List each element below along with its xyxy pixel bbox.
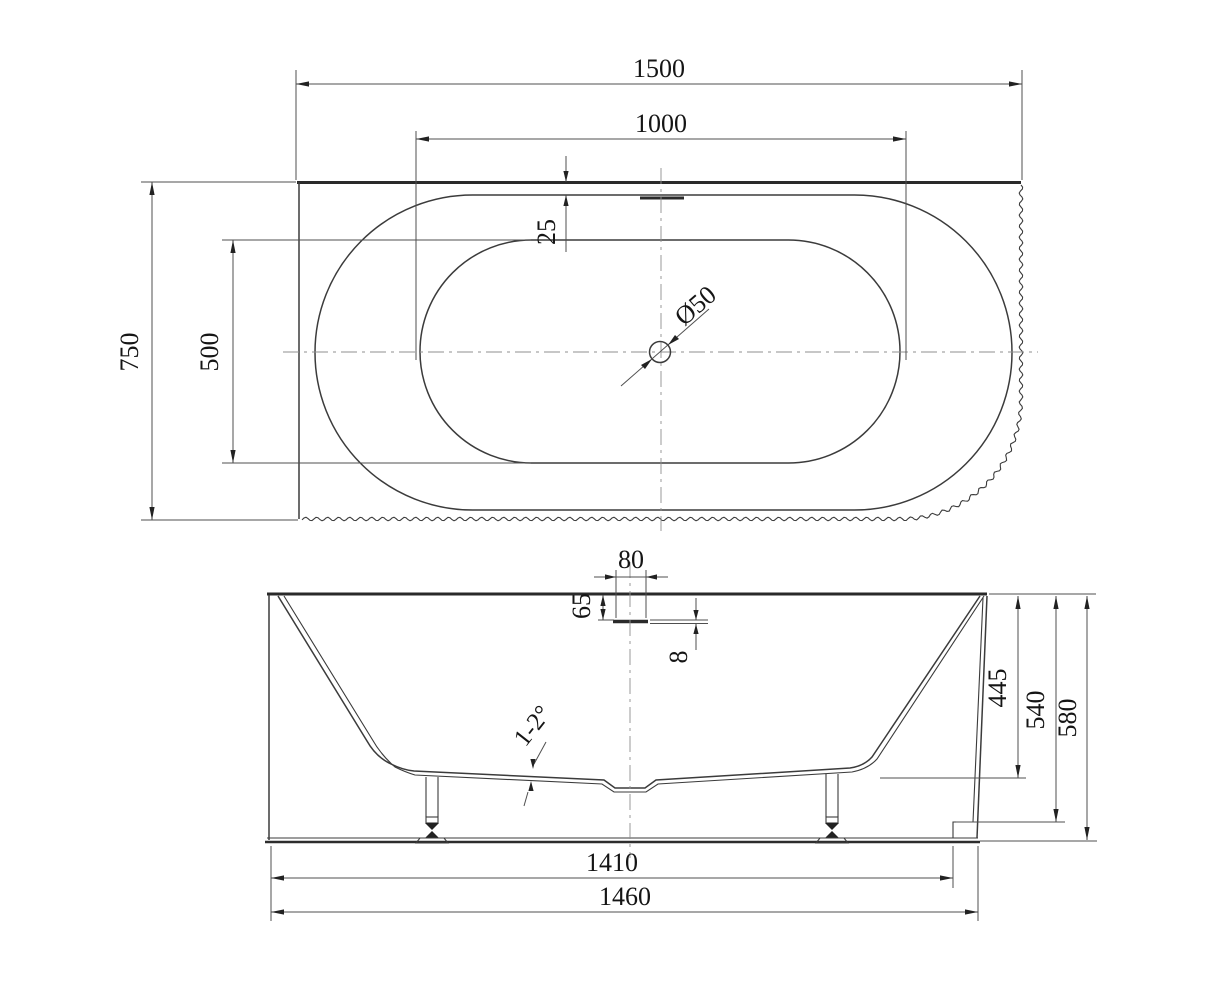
dim-basin-width-label: 500 — [195, 333, 224, 372]
dim-bottom-slope-label: 1-2° — [509, 701, 557, 752]
drain: Ø50 — [621, 280, 722, 386]
dim-inner-depth: 445 — [880, 596, 1026, 778]
side-view: 80 65 8 445 — [265, 545, 1097, 921]
arrowhead — [563, 171, 568, 182]
dim-basin-width: 500 — [195, 240, 531, 463]
arrowhead — [965, 909, 978, 914]
drain-diameter-label: Ø50 — [669, 280, 722, 331]
dim-overall-length-label: 1500 — [633, 54, 685, 83]
dim-overflow-drop: 65 — [567, 593, 614, 620]
top-view: Ø50 1500 1000 750 — [115, 54, 1038, 531]
arrowhead — [296, 81, 309, 86]
foot-adjuster — [825, 831, 839, 838]
arrowhead — [600, 609, 605, 620]
arrowhead — [646, 574, 657, 579]
dim-overall-height-label: 580 — [1053, 699, 1082, 738]
arrowhead — [271, 875, 284, 880]
dim-overflow-width-label: 80 — [618, 545, 644, 574]
adjustable-foot-right — [816, 774, 848, 843]
foot-adjuster — [825, 823, 839, 830]
arrowhead — [563, 195, 568, 206]
arrowhead — [1015, 765, 1020, 778]
dim-bottom-slope: 1-2° — [509, 701, 557, 806]
arrowhead — [1084, 596, 1089, 609]
arrowhead — [1009, 81, 1022, 86]
arrowhead — [600, 595, 605, 606]
arrowhead — [230, 240, 235, 253]
arrowhead — [1053, 809, 1058, 822]
dim-overflow-drop-label: 65 — [567, 593, 596, 619]
dim-overflow-gap-label: 8 — [664, 651, 693, 664]
arrowhead — [530, 759, 535, 769]
dim-skirt-height-label: 540 — [1021, 691, 1050, 730]
arrowhead — [1053, 596, 1058, 609]
dim-rim-offset-label: 25 — [532, 219, 561, 245]
arrowhead — [1084, 827, 1089, 840]
arrowhead — [693, 610, 698, 620]
technical-drawing: Ø50 1500 1000 750 — [0, 0, 1223, 1000]
arrowhead — [149, 182, 154, 195]
arrowhead — [693, 624, 698, 634]
dim-overflow-width: 80 — [594, 545, 668, 618]
foot-adjuster — [425, 831, 439, 838]
arrowhead — [230, 450, 235, 463]
arrowhead — [940, 875, 953, 880]
arrowhead — [416, 136, 429, 141]
arrowhead — [1015, 596, 1020, 609]
dim-rim-offset: 25 — [532, 156, 569, 252]
dim-overflow-gap: 8 — [650, 598, 708, 664]
arrowhead — [893, 136, 906, 141]
adjustable-foot-left — [416, 777, 448, 843]
foot-adjuster — [425, 823, 439, 830]
dim-overall-base-length-label: 1460 — [599, 882, 651, 911]
textured-edge — [302, 185, 1023, 521]
arrowhead — [149, 507, 154, 520]
dim-overall-width-label: 750 — [115, 333, 144, 372]
arrowhead — [528, 781, 533, 791]
basin-inner-surface — [278, 596, 980, 788]
arrowhead — [605, 574, 616, 579]
dim-base-length-label: 1410 — [586, 848, 638, 877]
dim-basin-length-label: 1000 — [635, 109, 687, 138]
arrowhead — [271, 909, 284, 914]
dim-skirt-height: 540 — [956, 596, 1065, 822]
dim-inner-depth-label: 445 — [983, 669, 1012, 708]
